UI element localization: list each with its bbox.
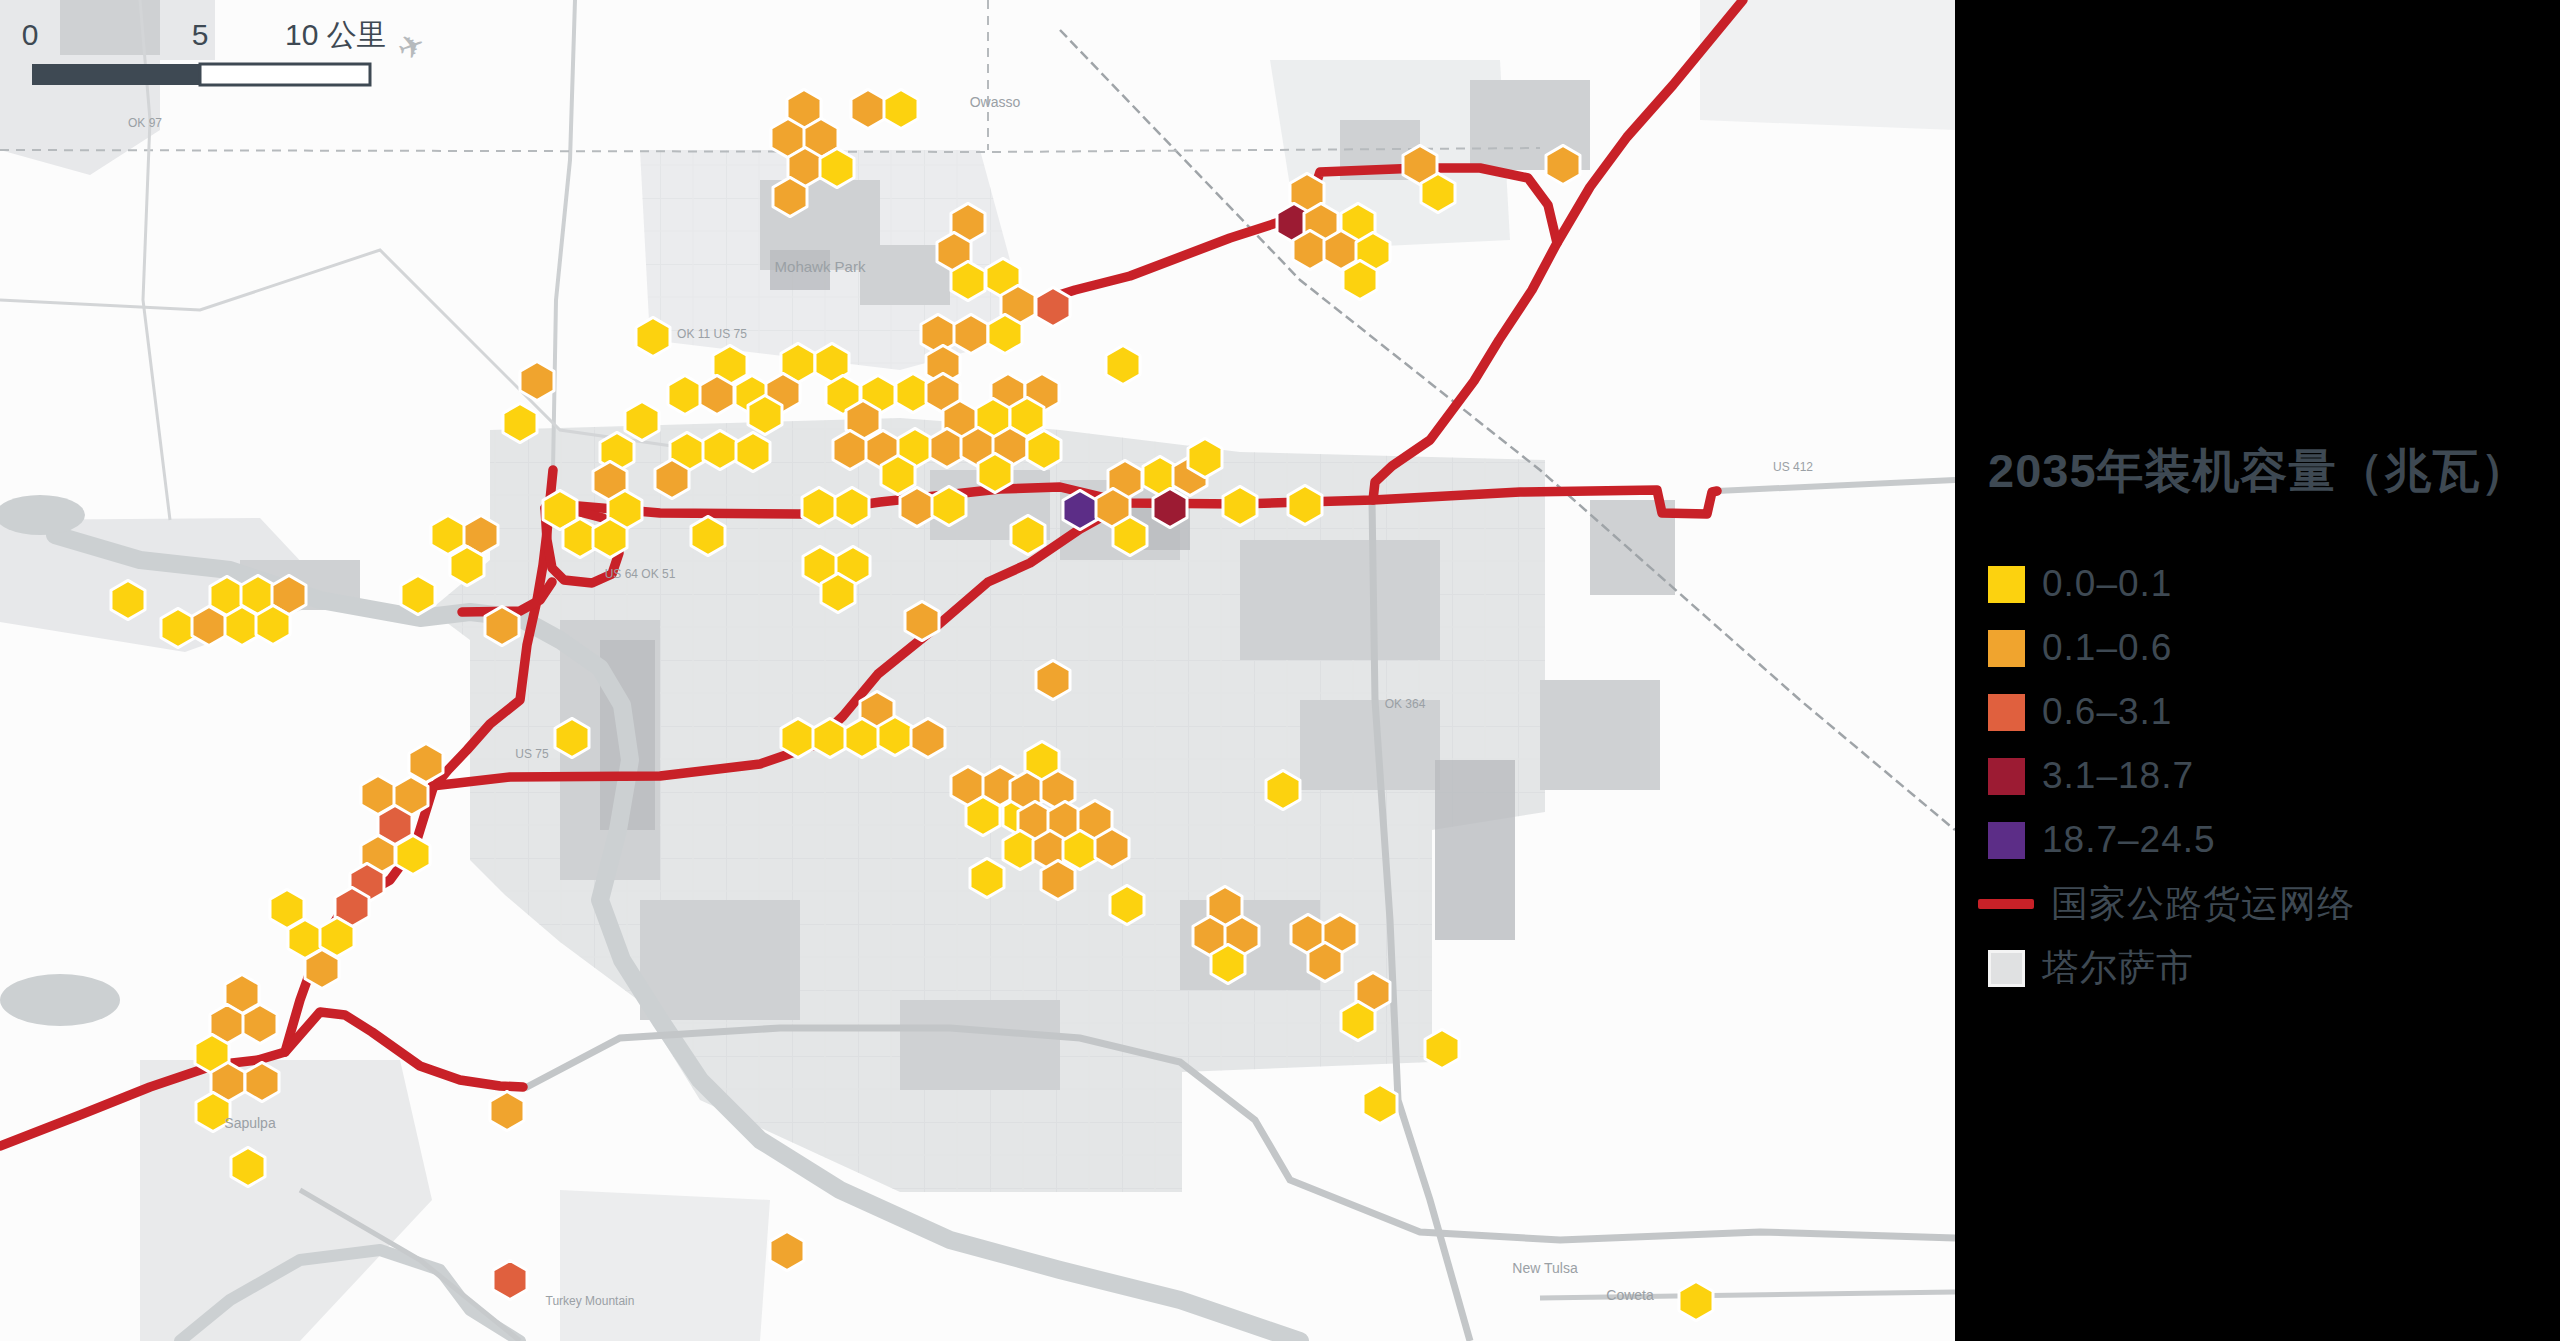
hex-bin[interactable] <box>1211 944 1245 983</box>
hex-bin[interactable] <box>493 1260 527 1299</box>
hex-bin[interactable] <box>770 1231 804 1270</box>
hex-bin[interactable] <box>748 395 782 434</box>
legend-item-city: 塔尔萨市 <box>1988 936 2355 1000</box>
map-place-label: OK 97 <box>128 116 162 130</box>
hex-bin[interactable] <box>1027 430 1061 469</box>
hex-bin[interactable] <box>1095 828 1129 867</box>
hex-bin[interactable] <box>802 487 836 526</box>
hex-bin[interactable] <box>1106 345 1140 384</box>
hex-bin[interactable] <box>503 403 537 442</box>
hex-bin[interactable] <box>490 1091 524 1130</box>
hex-bin[interactable] <box>930 428 964 467</box>
hex-bin[interactable] <box>1223 486 1257 525</box>
hex-bin[interactable] <box>1421 173 1455 212</box>
legend-item-bin1: 0.0–0.1 <box>1988 552 2355 616</box>
hex-bin[interactable] <box>1041 860 1075 899</box>
city-swatch <box>1988 950 2025 987</box>
legend-items: 0.0–0.1 0.1–0.6 0.6–3.1 3.1–18.7 18.7–24… <box>1988 552 2355 1000</box>
hex-bin[interactable] <box>966 796 1000 835</box>
hex-bin[interactable] <box>1363 1084 1397 1123</box>
hex-bin[interactable] <box>243 1004 277 1043</box>
hex-bin[interactable] <box>192 606 226 645</box>
hex-bin[interactable] <box>111 580 145 619</box>
hex-bin[interactable] <box>1679 1281 1713 1320</box>
hexbin-map-svg: Mohawk ParkOwassoNew TulsaCowetaSapulpaT… <box>0 0 1955 1341</box>
legend-item-bin5: 18.7–24.5 <box>1988 808 2355 872</box>
hex-bin[interactable] <box>1266 770 1300 809</box>
hex-bin[interactable] <box>820 148 854 187</box>
hex-bin[interactable] <box>1113 516 1147 555</box>
hex-bin[interactable] <box>1011 515 1045 554</box>
hex-bin[interactable] <box>555 718 589 757</box>
map-place-label: US 64 OK 51 <box>605 567 676 581</box>
hex-bin[interactable] <box>1288 485 1322 524</box>
hex-bin[interactable] <box>970 858 1004 897</box>
hex-bin[interactable] <box>1343 260 1377 299</box>
legend-item-road: 国家公路货运网络 <box>1988 872 2355 936</box>
hex-bin[interactable] <box>245 1062 279 1101</box>
bin4-swatch <box>1988 758 2025 795</box>
hex-bin[interactable] <box>951 261 985 300</box>
hex-bin[interactable] <box>773 177 807 216</box>
hex-bin[interactable] <box>845 718 879 757</box>
hex-bin[interactable] <box>161 608 195 647</box>
hex-bin[interactable] <box>881 455 915 494</box>
hex-bin[interactable] <box>781 718 815 757</box>
hex-bin[interactable] <box>821 573 855 612</box>
legend-item-bin3: 0.6–3.1 <box>1988 680 2355 744</box>
legend-title: 2035年装机容量（兆瓦） <box>1988 440 2548 503</box>
hex-bin[interactable] <box>225 606 259 645</box>
hex-bin[interactable] <box>636 317 670 356</box>
hex-bin[interactable] <box>1293 230 1327 269</box>
hex-bin[interactable] <box>911 718 945 757</box>
map-place-label: US 75 <box>515 747 549 761</box>
hex-bin[interactable] <box>1546 145 1580 184</box>
scale-label-5: 5 <box>192 18 209 51</box>
map-place-label: New Tulsa <box>1512 1260 1578 1276</box>
scale-label-0: 0 <box>22 18 39 51</box>
hex-bin[interactable] <box>1063 830 1097 869</box>
map-place-label: Turkey Mountain <box>546 1294 635 1308</box>
hex-bin[interactable] <box>1110 885 1144 924</box>
hex-bin[interactable] <box>520 361 554 400</box>
hex-bin[interactable] <box>1036 660 1070 699</box>
map-canvas[interactable]: Mohawk ParkOwassoNew TulsaCowetaSapulpaT… <box>0 0 1955 1341</box>
hex-bin[interactable] <box>396 835 430 874</box>
hex-bin[interactable] <box>305 949 339 988</box>
hex-bin[interactable] <box>485 606 519 645</box>
hex-bin[interactable] <box>954 314 988 353</box>
hex-bin[interactable] <box>625 401 659 440</box>
hex-bin[interactable] <box>833 430 867 469</box>
hex-bin[interactable] <box>851 89 885 128</box>
hex-bin[interactable] <box>593 518 627 557</box>
hex-bin[interactable] <box>256 605 290 644</box>
hex-bin[interactable] <box>988 314 1022 353</box>
hex-bin[interactable] <box>1153 488 1187 527</box>
legend-panel: 2035年装机容量（兆瓦） 0.0–0.1 0.1–0.6 0.6–3.1 3.… <box>1955 0 2560 1341</box>
map-place-label: US 412 <box>1773 460 1813 474</box>
hex-bin[interactable] <box>401 575 435 614</box>
hex-bin[interactable] <box>978 453 1012 492</box>
lake <box>0 974 120 1026</box>
bin3-swatch <box>1988 694 2025 731</box>
scale-label-10: 10 公里 <box>285 18 387 51</box>
bin1-swatch <box>1988 566 2025 603</box>
hex-bin[interactable] <box>450 546 484 585</box>
bin5-swatch <box>1988 822 2025 859</box>
hex-bin[interactable] <box>905 601 939 640</box>
hex-bin[interactable] <box>700 375 734 414</box>
map-place-label: Mohawk Park <box>775 258 866 275</box>
hex-bin[interactable] <box>1063 490 1097 529</box>
hex-bin[interactable] <box>1425 1029 1459 1068</box>
hex-bin[interactable] <box>691 516 725 555</box>
hex-bin[interactable] <box>884 89 918 128</box>
legend-item-bin4: 3.1–18.7 <box>1988 744 2355 808</box>
map-place-label: Coweta <box>1606 1287 1654 1303</box>
hex-bin[interactable] <box>736 432 770 471</box>
hex-bin[interactable] <box>835 487 869 526</box>
map-place-label: Owasso <box>970 94 1021 110</box>
hex-bin[interactable] <box>813 718 847 757</box>
hex-bin[interactable] <box>431 515 465 554</box>
legend-item-bin2: 0.1–0.6 <box>1988 616 2355 680</box>
hex-bin[interactable] <box>1036 287 1070 326</box>
hex-bin[interactable] <box>1188 438 1222 477</box>
screenshot-root: Mohawk ParkOwassoNew TulsaCowetaSapulpaT… <box>0 0 2560 1341</box>
hex-bin[interactable] <box>900 487 934 526</box>
hex-bin[interactable] <box>703 430 737 469</box>
map-place-label: OK 11 US 75 <box>677 327 747 341</box>
hex-bin[interactable] <box>932 486 966 525</box>
hex-bin[interactable] <box>1341 1001 1375 1040</box>
hex-bin[interactable] <box>668 375 702 414</box>
bin2-swatch <box>1988 630 2025 667</box>
road-line-swatch <box>1978 899 2034 909</box>
hex-bin[interactable] <box>231 1147 265 1186</box>
hex-bin[interactable] <box>1308 942 1342 981</box>
map-place-label: Sapulpa <box>224 1115 276 1131</box>
hex-bin[interactable] <box>655 459 689 498</box>
hex-bin[interactable] <box>878 716 912 755</box>
map-place-label: OK 364 <box>1385 697 1426 711</box>
